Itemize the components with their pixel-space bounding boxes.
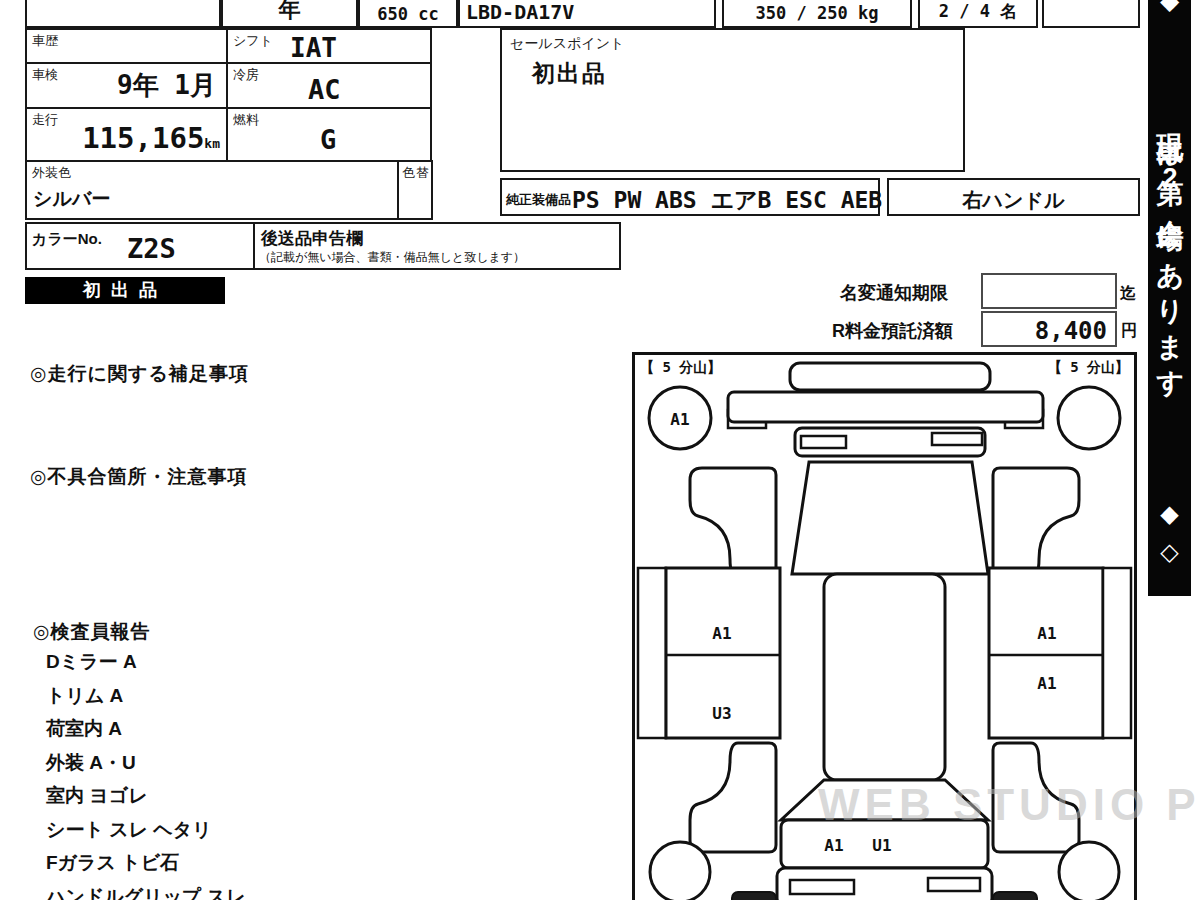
top-row-year-box: 年 xyxy=(221,0,358,28)
history-label: 車歴 xyxy=(32,34,58,47)
inspector-item: シート スレ ヘタリ xyxy=(46,813,246,847)
banner-top-diamond: ◆ xyxy=(1148,0,1191,15)
rear-left-wheel xyxy=(650,842,710,900)
equipment-cell: 純正装備品 PS PW ABS エアB ESC AEB xyxy=(500,178,880,216)
shift-cell: シフト IAT xyxy=(226,28,432,64)
sales-point-label: セールスポイント xyxy=(510,36,624,50)
right-side-panel xyxy=(989,568,1103,738)
later-items-label: 後送品申告欄 xyxy=(261,227,363,250)
rear-window xyxy=(781,780,988,820)
color-no-cell: カラーNo. Z2S xyxy=(25,222,255,270)
inspection-value: 9年 1月 xyxy=(117,68,216,103)
capacity-value: 2 / 4 名 xyxy=(920,0,1036,23)
rear-vent xyxy=(928,878,980,891)
color-change-label: 色替 xyxy=(402,166,430,179)
fuel-cell: 燃料 G xyxy=(226,107,432,162)
name-change-box xyxy=(981,273,1117,309)
exterior-color-label: 外装色 xyxy=(32,166,71,179)
shift-label: シフト xyxy=(233,34,273,47)
left-panel-upper-mark: A1 xyxy=(712,624,731,643)
inspection-label: 車検 xyxy=(32,68,58,81)
windshield xyxy=(792,462,988,574)
mileage-label: 走行 xyxy=(32,113,58,126)
year-label: 年 xyxy=(223,0,356,25)
banner-diamond-filled: ◆ xyxy=(1148,500,1191,528)
front-bumper xyxy=(728,392,1043,422)
steering-cell: 右ハンドル xyxy=(887,178,1140,216)
tire-tread-left-label: 【 5 分山】 xyxy=(640,359,721,375)
later-items-cell: 後送品申告欄 （記載が無い場合、書類・備品無しと致します） xyxy=(253,222,621,270)
venue-banner-text: 現車は第2会場にあります xyxy=(1148,112,1191,387)
ac-label: 冷房 xyxy=(233,68,259,81)
roof-front-edge xyxy=(790,363,990,390)
front-vent xyxy=(932,433,982,445)
top-row-model-code-box: LBD-DA17V xyxy=(458,0,716,28)
later-items-note: （記載が無い場合、書類・備品無しと致します） xyxy=(259,249,525,266)
exterior-color-value: シルバー xyxy=(33,186,110,212)
name-change-label: 名変通知期限 xyxy=(840,281,948,305)
left-sill xyxy=(638,568,666,738)
deposit-value: 8,400 xyxy=(1035,317,1107,345)
vehicle-diagram: 【 5 分山】 【 5 分山】 A1 A1 U3 A1 A1 xyxy=(632,352,1137,900)
rear-left-fender xyxy=(690,743,776,852)
rear-right-fender xyxy=(993,743,1079,852)
ac-value: AC xyxy=(308,74,341,105)
roof-panel xyxy=(824,574,945,780)
name-change-suffix: 迄 xyxy=(1120,283,1136,304)
first-listing-badge-text: 初出品 xyxy=(83,280,167,300)
color-no-label: カラーNo. xyxy=(32,230,102,249)
front-plate xyxy=(801,436,846,448)
mileage-value: 115,165 xyxy=(82,121,204,155)
venue-banner: ◆ 現車は第2会場にあります ◆ ◇ xyxy=(1148,0,1191,596)
inspector-item: 荷室内 A xyxy=(46,712,246,746)
model-code-value: LBD-DA17V xyxy=(466,0,574,24)
inspector-item: Fガラス トビ石 xyxy=(46,846,246,880)
history-cell: 車歴 xyxy=(25,28,228,64)
equipment-value: PS PW ABS エアB ESC AEB xyxy=(572,185,882,216)
rear-plate xyxy=(790,880,854,894)
front-right-fender xyxy=(993,468,1079,577)
sales-point-value: 初出品 xyxy=(532,58,607,89)
inspection-cell: 車検 9年 1月 xyxy=(25,62,228,109)
right-sill xyxy=(1103,568,1131,738)
banner-diamond-outline: ◇ xyxy=(1148,538,1191,566)
rear-right-wheel xyxy=(1059,842,1119,900)
inspector-report-list: Dミラー A トリム A 荷室内 A 外装 A・U 室内 ヨゴレ シート スレ … xyxy=(46,645,246,900)
tire-tread-right-label: 【 5 分山】 xyxy=(1048,359,1129,375)
weight-value: 350 / 250 kg xyxy=(724,3,910,23)
inspector-title: ◎検査員報告 xyxy=(33,619,151,645)
shift-value: IAT xyxy=(290,33,337,63)
rear-right-lamp xyxy=(993,892,1037,900)
top-row-displacement-box: 650 cc xyxy=(358,0,458,28)
fuel-value: G xyxy=(320,124,336,155)
rear-left-lamp xyxy=(732,892,776,900)
deposit-label: R料金預託済額 xyxy=(832,319,953,343)
inspector-item: トリム A xyxy=(46,679,246,713)
ac-cell: 冷房 AC xyxy=(226,62,432,109)
top-row-capacity-box: 2 / 4 名 xyxy=(918,0,1038,28)
rear-gate-mark-1: A1 xyxy=(824,836,843,855)
top-row-empty-box xyxy=(25,0,221,28)
front-right-wheel xyxy=(1058,387,1120,449)
mileage-note-title: ◎走行に関する補足事項 xyxy=(30,361,249,387)
displacement-value: 650 cc xyxy=(360,4,456,24)
mileage-unit: km xyxy=(204,136,220,151)
mileage-cell: 走行 115,165km xyxy=(25,107,228,162)
color-no-value: Z2S xyxy=(127,233,176,264)
inspector-item: Dミラー A xyxy=(46,645,246,679)
deposit-box: 8,400 xyxy=(981,311,1117,347)
inspector-item: 外装 A・U xyxy=(46,746,246,780)
steering-value: 右ハンドル xyxy=(889,187,1138,214)
right-panel-upper-mark: A1 xyxy=(1037,624,1056,643)
inspector-item: ハンドルグリップ スレ xyxy=(46,880,246,900)
left-panel-lower-mark: U3 xyxy=(712,704,731,723)
rear-gate-mark-2: U1 xyxy=(872,836,891,855)
color-change-cell: 色替 xyxy=(397,160,433,220)
top-row-weight-box: 350 / 250 kg xyxy=(722,0,912,28)
fuel-label: 燃料 xyxy=(233,113,259,126)
right-panel-mid-mark: A1 xyxy=(1037,674,1056,693)
front-left-fender xyxy=(690,468,776,577)
front-left-wheel-mark: A1 xyxy=(670,410,689,429)
equipment-label: 純正装備品 xyxy=(506,191,571,209)
sales-point-box: セールスポイント 初出品 xyxy=(500,28,965,172)
first-listing-badge: 初出品 xyxy=(25,277,225,304)
deposit-unit: 円 xyxy=(1121,321,1137,342)
defects-title: ◎不具合箇所・注意事項 xyxy=(30,464,248,490)
exterior-color-cell: 外装色 シルバー xyxy=(25,160,399,220)
inspector-item: 室内 ヨゴレ xyxy=(46,779,246,813)
top-row-right-box xyxy=(1042,0,1140,28)
